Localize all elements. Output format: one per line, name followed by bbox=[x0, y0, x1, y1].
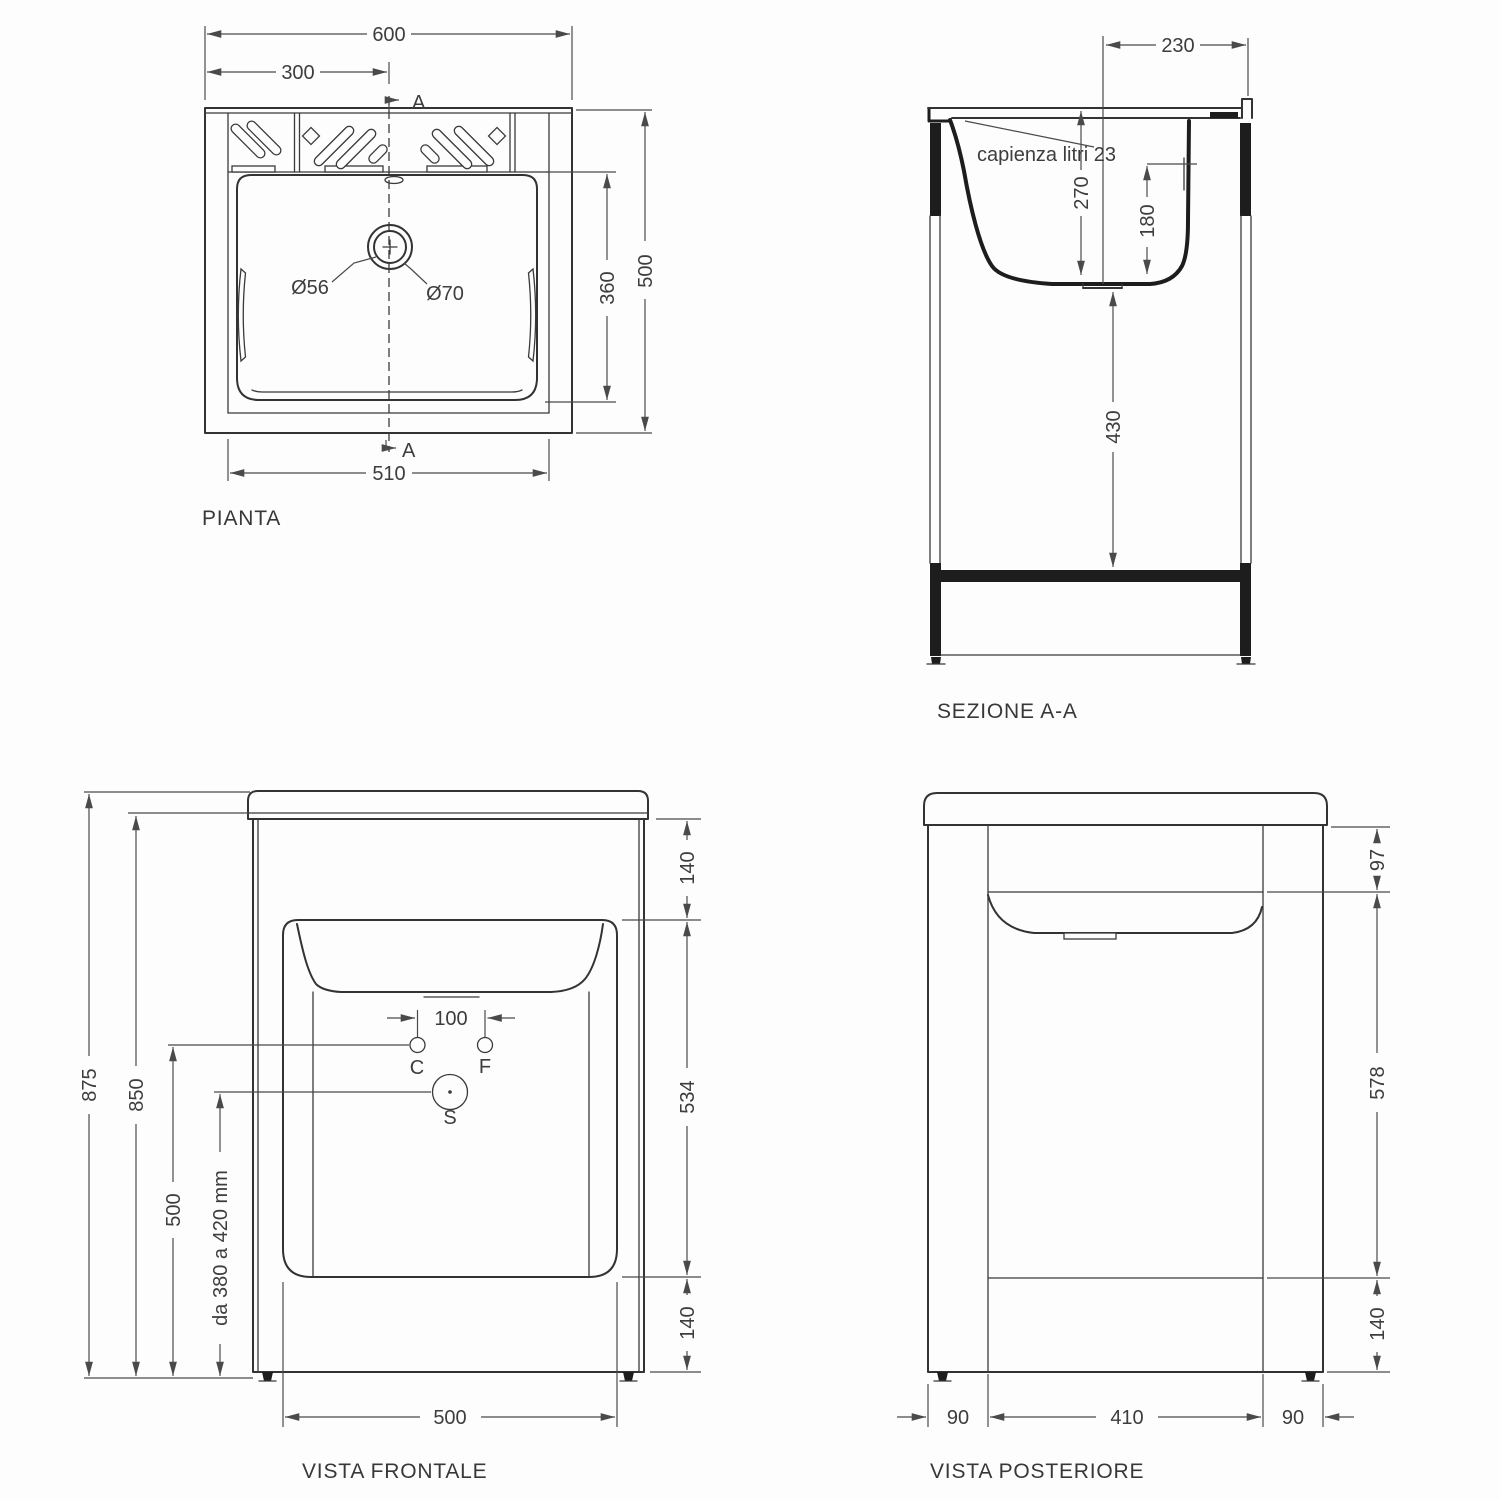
front-feet bbox=[259, 1372, 637, 1381]
dim-rear-90-left: 90 bbox=[947, 1407, 969, 1429]
dim-front-140-top: 140 bbox=[677, 851, 699, 884]
dim-plan-300: 300 bbox=[207, 62, 389, 84]
dim-rear-97: 97 bbox=[1367, 849, 1389, 871]
rear-view: 97 578 140 90 410 90 VISTA POSTERIORE bbox=[897, 793, 1390, 1483]
plan-washboard-panels bbox=[229, 113, 515, 172]
dim-section-230: 230 bbox=[1106, 35, 1248, 96]
hole-c-label: C bbox=[410, 1057, 424, 1079]
front-tap-holes: C F S bbox=[410, 1038, 493, 1130]
svg-text:600: 600 bbox=[372, 24, 405, 46]
dim-front-trap-range: da 380 a 420 mm bbox=[210, 1094, 232, 1376]
svg-text:100: 100 bbox=[434, 1008, 467, 1030]
section-letter-bottom: A bbox=[402, 440, 416, 462]
plan-left-grip bbox=[238, 269, 245, 361]
svg-text:510: 510 bbox=[372, 463, 405, 485]
svg-text:300: 300 bbox=[281, 62, 314, 84]
drain-large-label: Ø70 bbox=[426, 283, 464, 305]
plan-view-title: PIANTA bbox=[202, 507, 281, 530]
dim-rear-410: 410 bbox=[1110, 1407, 1143, 1429]
drain-small-leader bbox=[332, 257, 376, 282]
capacity-note: capienza litri 23 bbox=[977, 144, 1116, 166]
dim-rear-90-right: 90 bbox=[1282, 1407, 1304, 1429]
dim-front-140-bottom: 140 bbox=[677, 1306, 699, 1339]
rear-cabinet bbox=[928, 825, 1323, 1372]
technical-drawing-sheet: Ø56 Ø70 A A 600 300 510 bbox=[0, 0, 1500, 1500]
dim-rear-578: 578 bbox=[1367, 1066, 1389, 1099]
dim-rear-140: 140 bbox=[1367, 1307, 1389, 1340]
dim-plan-360: 360 bbox=[545, 172, 619, 402]
svg-text:270: 270 bbox=[1071, 176, 1093, 209]
drain-large-leader bbox=[404, 263, 427, 284]
rear-siphon-tab bbox=[1064, 933, 1116, 939]
rear-view-title: VISTA POSTERIORE bbox=[930, 1460, 1144, 1483]
svg-text:500: 500 bbox=[163, 1193, 185, 1226]
drain-small-label: Ø56 bbox=[291, 277, 329, 299]
dim-front-500-bottom: 500 bbox=[283, 1282, 617, 1429]
front-view-title: VISTA FRONTALE bbox=[302, 1460, 487, 1483]
front-basin-lip bbox=[297, 924, 603, 992]
dim-front-100: 100 bbox=[387, 1008, 515, 1037]
section-letter-top: A bbox=[412, 92, 426, 114]
svg-text:500: 500 bbox=[433, 1407, 466, 1429]
dim-front-500-left: 500 bbox=[163, 1047, 185, 1376]
front-recess-panel bbox=[283, 920, 617, 1277]
section-arrow-bottom bbox=[386, 440, 396, 448]
front-countertop bbox=[248, 791, 648, 819]
section-back-lip bbox=[1242, 99, 1252, 118]
svg-text:180: 180 bbox=[1137, 204, 1159, 237]
front-cabinet bbox=[253, 819, 644, 1372]
dim-section-430: 430 bbox=[1103, 292, 1125, 567]
section-view-title: SEZIONE A-A bbox=[937, 700, 1078, 723]
section-feet bbox=[927, 657, 1255, 664]
rear-countertop bbox=[924, 793, 1327, 825]
section-view: 230 270 180 430 capienza litri 23 SEZION… bbox=[927, 35, 1255, 723]
section-countertop-nose bbox=[929, 109, 949, 121]
rear-basin-back-lip bbox=[988, 895, 1262, 933]
dim-section-270: 270 bbox=[1071, 111, 1093, 275]
section-overflow-slot bbox=[1210, 112, 1238, 118]
svg-text:360: 360 bbox=[597, 271, 619, 304]
dim-plan-510: 510 bbox=[228, 439, 549, 485]
dim-front-534: 534 bbox=[677, 1080, 699, 1113]
section-plinth-shelf bbox=[941, 570, 1240, 582]
svg-text:430: 430 bbox=[1103, 410, 1125, 443]
hole-s-label: S bbox=[443, 1107, 456, 1129]
svg-text:da 380 a 420 mm: da 380 a 420 mm bbox=[210, 1170, 232, 1326]
plan-overflow-slot bbox=[385, 177, 403, 184]
plan-basin bbox=[237, 175, 537, 400]
svg-text:875: 875 bbox=[79, 1068, 101, 1101]
laundry-sink-technical-drawing: Ø56 Ø70 A A 600 300 510 bbox=[0, 0, 1500, 1500]
plan-right-grip bbox=[529, 269, 536, 361]
plan-drain bbox=[368, 225, 412, 269]
svg-text:230: 230 bbox=[1161, 35, 1194, 57]
front-view: C F S 100 875 850 bbox=[79, 791, 701, 1483]
plan-view: Ø56 Ø70 A A 600 300 510 bbox=[202, 24, 657, 530]
dim-front-right-stack: 140 534 140 bbox=[622, 819, 701, 1372]
rear-feet bbox=[934, 1372, 1319, 1381]
dim-rear-right-stack: 97 578 140 bbox=[1267, 827, 1390, 1372]
hole-f-label: F bbox=[479, 1056, 491, 1078]
svg-text:850: 850 bbox=[126, 1078, 148, 1111]
svg-text:500: 500 bbox=[635, 254, 657, 287]
dim-rear-bottom: 90 410 90 bbox=[897, 1374, 1354, 1429]
